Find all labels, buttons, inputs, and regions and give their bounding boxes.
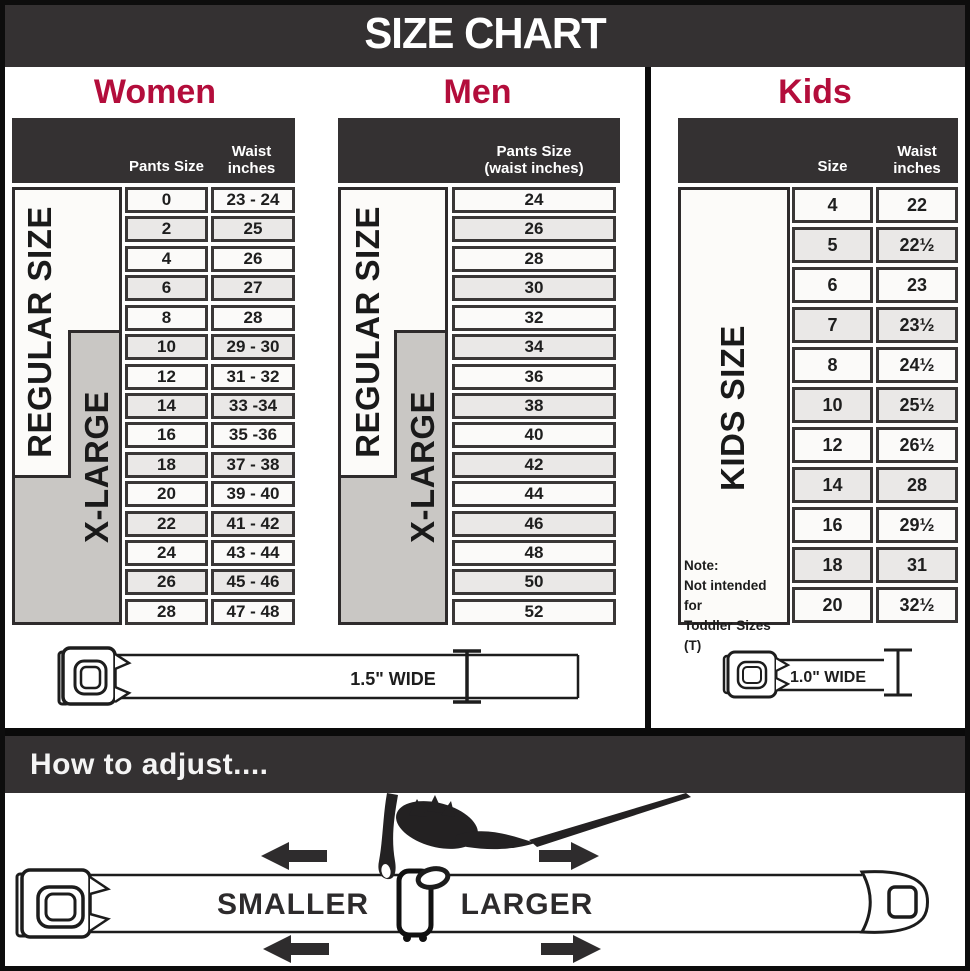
belt-tail-line (529, 793, 691, 847)
pants-size-cell: 20 (125, 481, 208, 507)
table-row: 18 31 (792, 547, 958, 583)
table-row: 8 24½ (792, 347, 958, 383)
waist-cell: 29 - 30 (211, 334, 295, 360)
size-cell: 20 (792, 587, 873, 623)
waist-cell: 26 (211, 246, 295, 272)
table-row: 10 25½ (792, 387, 958, 423)
table-row: 26 (452, 216, 616, 242)
size-cell: 6 (792, 267, 873, 303)
kids-size-table: 4 22 5 22½ 6 23 7 23½ 8 24½ 10 25½ 12 26… (792, 187, 958, 623)
waist-cell: 28 (876, 467, 958, 503)
waist-cell: 31 (876, 547, 958, 583)
arrow-left-icon (261, 842, 327, 870)
men-xlarge-label: X-LARGE (403, 337, 443, 597)
pants-size-cell: 52 (452, 599, 616, 625)
smaller-label: SMALLER (217, 888, 369, 921)
table-row: 20 32½ (792, 587, 958, 623)
kids-section-heading: Kids (655, 70, 970, 114)
size-cell: 5 (792, 227, 873, 263)
table-row: 38 (452, 393, 616, 419)
seatbelt-buckle-icon (17, 870, 108, 937)
table-row: 14 33 -34 (125, 393, 295, 419)
waist-cell: 25½ (876, 387, 958, 423)
pants-size-cell: 2 (125, 216, 208, 242)
kids-note-line: Note: (684, 556, 788, 576)
waist-cell: 41 - 42 (211, 511, 295, 537)
table-row: 18 37 - 38 (125, 452, 295, 478)
table-row: 30 (452, 275, 616, 301)
waist-cell: 25 (211, 216, 295, 242)
waist-cell: 22½ (876, 227, 958, 263)
waist-cell: 31 - 32 (211, 364, 295, 390)
waist-cell: 32½ (876, 587, 958, 623)
waist-cell: 23 (876, 267, 958, 303)
table-row: 10 29 - 30 (125, 334, 295, 360)
kids-size-label: KIDS SIZE (713, 248, 753, 568)
pants-size-cell: 46 (452, 511, 616, 537)
table-row: 32 (452, 305, 616, 331)
width-gauge-icon (884, 650, 912, 695)
men-size-table: 24 26 28 30 32 34 36 38 40 42 44 46 48 5… (452, 187, 616, 625)
table-row: 46 (452, 511, 616, 537)
pants-size-cell: 36 (452, 364, 616, 390)
table-row: 14 28 (792, 467, 958, 503)
waist-cell: 29½ (876, 507, 958, 543)
page-title: SIZE CHART (364, 9, 605, 59)
size-cell: 12 (792, 427, 873, 463)
kids-belt-width-label: 1.0" WIDE (790, 669, 866, 686)
waist-cell: 37 - 38 (211, 452, 295, 478)
women-xlarge-label: X-LARGE (77, 337, 117, 597)
belt-strap (115, 655, 578, 698)
pants-size-cell: 8 (125, 305, 208, 331)
table-row: 6 23 (792, 267, 958, 303)
arrow-left-icon (263, 935, 329, 963)
pants-size-cell: 22 (125, 511, 208, 537)
table-row: 36 (452, 364, 616, 390)
width-gauge-icon (453, 651, 481, 702)
pants-size-cell: 6 (125, 275, 208, 301)
pants-size-cell: 0 (125, 187, 208, 213)
waist-cell: 33 -34 (211, 393, 295, 419)
size-cell: 7 (792, 307, 873, 343)
table-row: 7 23½ (792, 307, 958, 343)
table-row: 6 27 (125, 275, 295, 301)
seatbelt-buckle-icon (724, 652, 788, 697)
pants-size-cell: 28 (125, 599, 208, 625)
pants-size-cell: 48 (452, 540, 616, 566)
table-row: 52 (452, 599, 616, 625)
pants-size-cell: 42 (452, 452, 616, 478)
men-regular-size-label: REGULAR SIZE (348, 182, 388, 482)
pants-size-cell: 10 (125, 334, 208, 360)
table-row: 20 39 - 40 (125, 481, 295, 507)
pants-size-cell: 16 (125, 422, 208, 448)
table-row: 4 22 (792, 187, 958, 223)
table-row: 48 (452, 540, 616, 566)
adjust-banner: How to adjust.... (0, 728, 970, 793)
table-row: 24 (452, 187, 616, 213)
waist-cell: 43 - 44 (211, 540, 295, 566)
table-row: 42 (452, 452, 616, 478)
size-cell: 8 (792, 347, 873, 383)
pants-size-cell: 30 (452, 275, 616, 301)
pants-size-cell: 34 (452, 334, 616, 360)
pants-size-cell: 12 (125, 364, 208, 390)
table-row: 26 45 - 46 (125, 569, 295, 595)
larger-label: LARGER (461, 888, 594, 921)
table-row: 16 35 -36 (125, 422, 295, 448)
pants-size-cell: 50 (452, 569, 616, 595)
belt-tongue-icon (862, 872, 928, 933)
kids-note-line: Not intended for (684, 576, 788, 616)
pants-size-cell: 28 (452, 246, 616, 272)
pants-size-cell: 14 (125, 393, 208, 419)
pants-size-cell: 38 (452, 393, 616, 419)
pants-size-column-header: Pants Size (125, 158, 208, 175)
size-cell: 18 (792, 547, 873, 583)
seatbelt-buckle-icon (59, 648, 129, 704)
adult-belt-width-label: 1.5" WIDE (350, 669, 436, 689)
pants-size-cell: 24 (452, 187, 616, 213)
waist-cell: 23 - 24 (211, 187, 295, 213)
waist-cell: 47 - 48 (211, 599, 295, 625)
pants-size-cell: 26 (125, 569, 208, 595)
pants-size-cell: 4 (125, 246, 208, 272)
women-regular-size-label: REGULAR SIZE (20, 182, 60, 482)
adjust-heading: How to adjust.... (30, 748, 269, 782)
waist-cell: 24½ (876, 347, 958, 383)
pants-size-column-header: Pants Size (waist inches) (452, 143, 616, 177)
waist-cell: 23½ (876, 307, 958, 343)
waist-cell: 28 (211, 305, 295, 331)
waist-cell: 26½ (876, 427, 958, 463)
women-size-table: 0 23 - 24 2 25 4 26 6 27 8 28 10 29 - 30… (125, 187, 295, 625)
size-cell: 16 (792, 507, 873, 543)
table-row: 5 22½ (792, 227, 958, 263)
pants-size-cell: 26 (452, 216, 616, 242)
women-section-heading: Women (0, 70, 310, 114)
pants-size-cell: 44 (452, 481, 616, 507)
waist-column-header: Waist inches (208, 143, 295, 177)
adult-belt-width-diagram: 1.5" WIDE (55, 640, 590, 710)
kids-table-header: Size Waist inches (678, 118, 958, 183)
waist-cell: 39 - 40 (211, 481, 295, 507)
table-row: 40 (452, 422, 616, 448)
title-banner: SIZE CHART (0, 0, 970, 67)
waist-cell: 27 (211, 275, 295, 301)
arrow-right-icon (539, 842, 599, 870)
adjust-diagram: SMALLER LARGER (5, 793, 965, 966)
table-row: 22 41 - 42 (125, 511, 295, 537)
pants-size-cell: 24 (125, 540, 208, 566)
table-row: 4 26 (125, 246, 295, 272)
table-row: 12 31 - 32 (125, 364, 295, 390)
table-row: 12 26½ (792, 427, 958, 463)
men-table-header: Pants Size (waist inches) (338, 118, 620, 183)
kids-belt-width-diagram: 1.0" WIDE (720, 640, 930, 705)
table-row: 2 25 (125, 216, 295, 242)
section-divider (645, 67, 651, 733)
table-row: 28 47 - 48 (125, 599, 295, 625)
table-row: 0 23 - 24 (125, 187, 295, 213)
table-row: 8 28 (125, 305, 295, 331)
waist-cell: 22 (876, 187, 958, 223)
size-cell: 4 (792, 187, 873, 223)
size-cell: 14 (792, 467, 873, 503)
size-column-header: Size (792, 158, 873, 175)
pants-size-cell: 18 (125, 452, 208, 478)
table-row: 24 43 - 44 (125, 540, 295, 566)
table-row: 34 (452, 334, 616, 360)
size-cell: 10 (792, 387, 873, 423)
waist-cell: 35 -36 (211, 422, 295, 448)
table-row: 44 (452, 481, 616, 507)
table-row: 28 (452, 246, 616, 272)
pants-size-cell: 32 (452, 305, 616, 331)
table-row: 16 29½ (792, 507, 958, 543)
waist-column-header: Waist inches (876, 143, 958, 177)
men-section-heading: Men (330, 70, 625, 114)
arrow-right-icon (541, 935, 601, 963)
table-row: 50 (452, 569, 616, 595)
waist-cell: 45 - 46 (211, 569, 295, 595)
women-table-header: Pants Size Waist inches (12, 118, 295, 183)
pants-size-cell: 40 (452, 422, 616, 448)
size-chart-infographic: SIZE CHART Women Men Kids Pants Size Wai… (0, 0, 970, 971)
